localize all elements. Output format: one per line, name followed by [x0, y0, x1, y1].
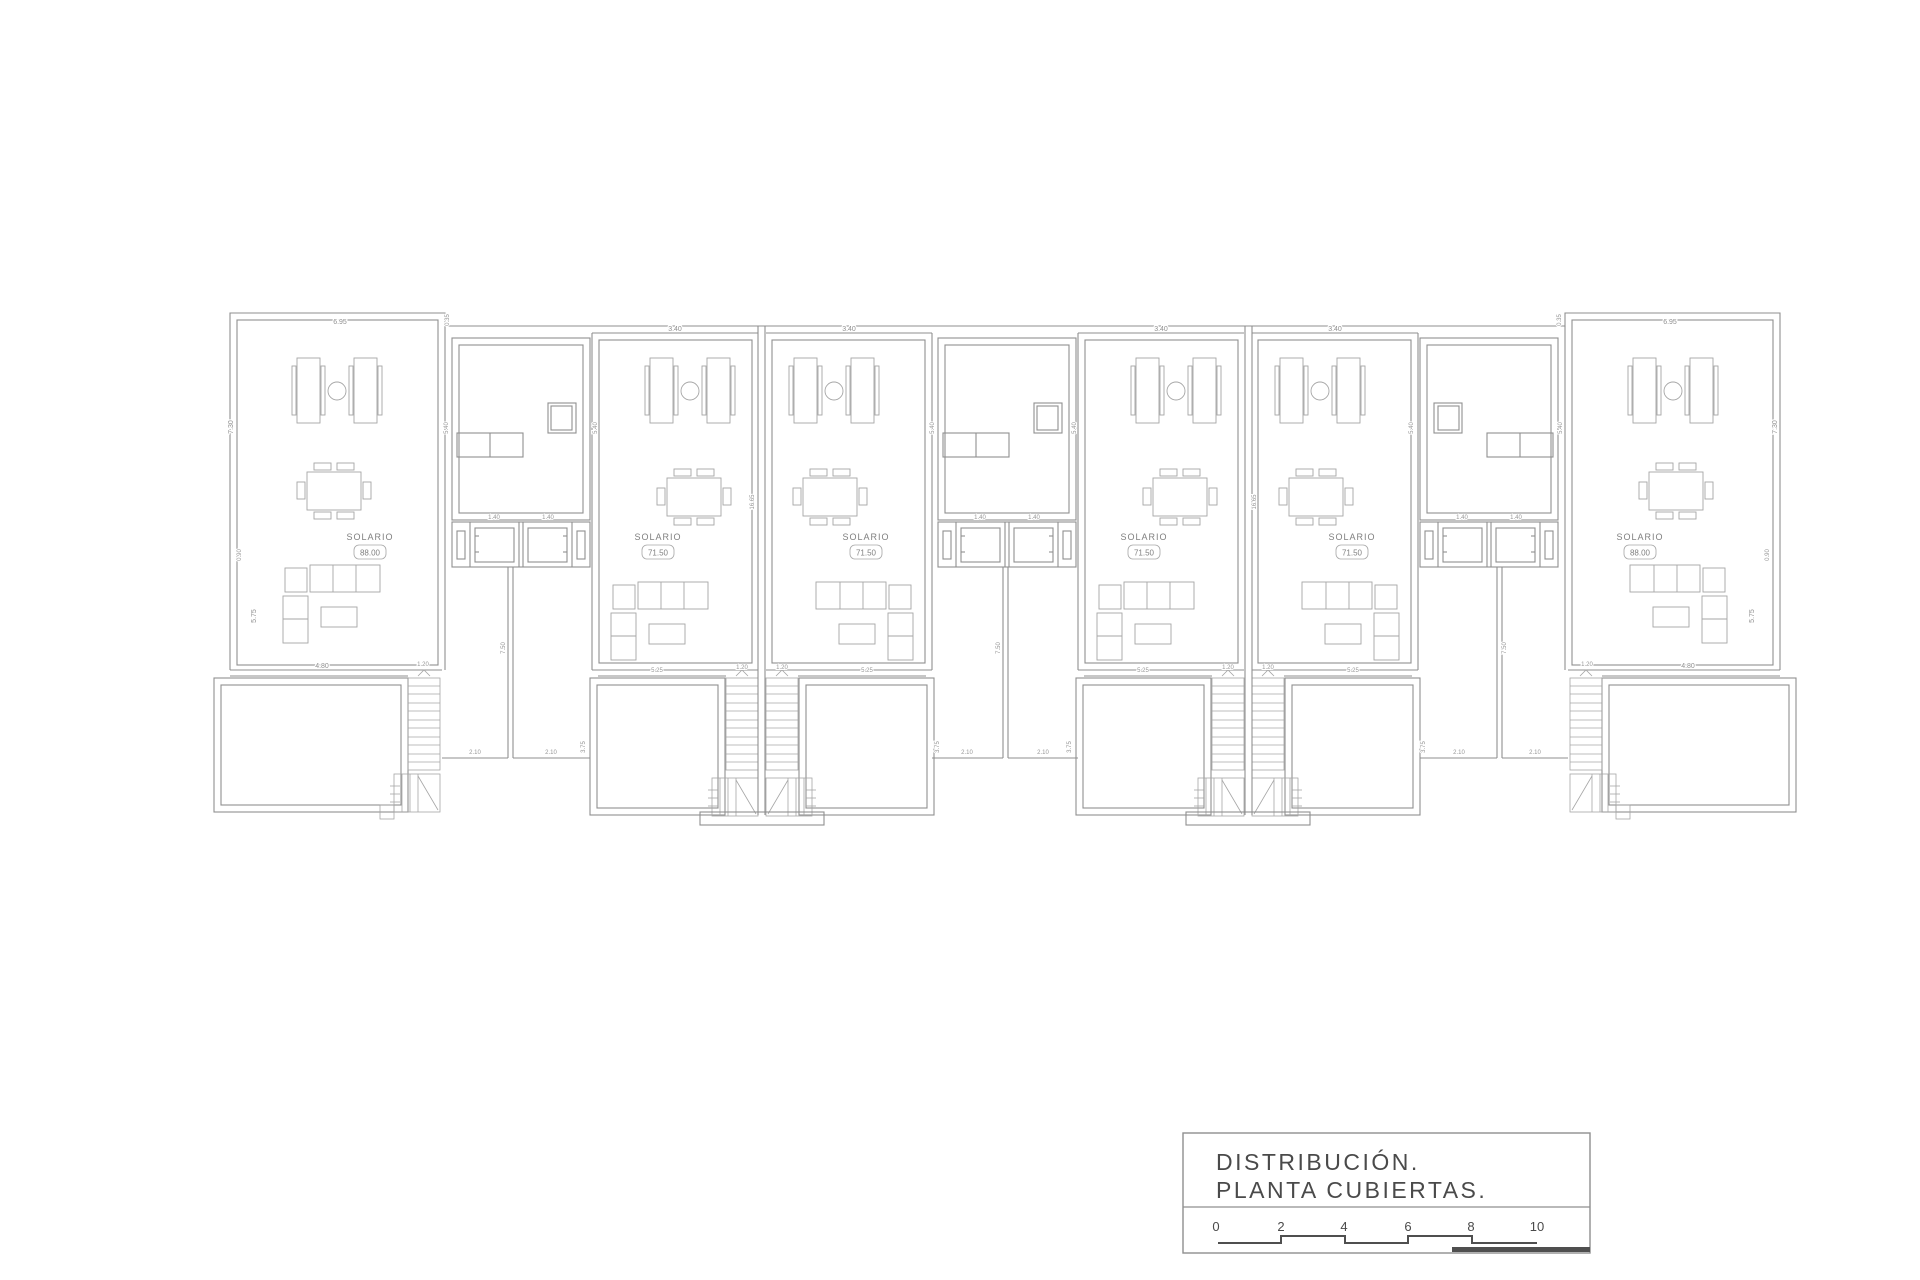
- dim-side-height-right: 7.30: [1772, 420, 1779, 434]
- dim-strip-height-1: 7.50: [501, 642, 507, 654]
- dim-end-width-right: 6.95: [1663, 319, 1677, 326]
- scale-tick-6: 6: [1404, 1219, 1411, 1234]
- floor-plan-page: SOLARIO 88.00 SOLARIO 71.50 SOLARIO 71.5…: [0, 0, 1920, 1280]
- area-value-4: 71.50: [1134, 549, 1155, 558]
- area-value-5: 71.50: [1342, 549, 1363, 558]
- scale-tick-10: 10: [1530, 1219, 1544, 1234]
- dim-room-side-3: 5.40: [930, 422, 936, 434]
- solario-label-1: SOLARIO: [346, 532, 393, 542]
- area-value-2: 71.50: [648, 549, 669, 558]
- dim-room-side-5: 5.40: [1409, 422, 1415, 434]
- dim-ac-5: 1.40: [1456, 515, 1468, 521]
- dim-step-right: 0.35: [1557, 314, 1563, 326]
- dim-lower-width-left: 4.80: [315, 663, 329, 670]
- dim-gap-5: 2.10: [1453, 750, 1465, 756]
- title-block-heavy-line: [1452, 1247, 1590, 1252]
- solario-label-6: SOLARIO: [1616, 532, 1663, 542]
- dim-ac-2: 1.40: [542, 515, 554, 521]
- title-block: DISTRIBUCIÓN. PLANTA CUBIERTAS. 0 2 4 6 …: [1183, 1133, 1590, 1253]
- dim-room-side-4: 5.40: [1072, 422, 1078, 434]
- dim-gap-3: 2.10: [961, 750, 973, 756]
- dim-mid-width-2: 3.40: [842, 326, 856, 333]
- dim-strip-height-2: 7.50: [996, 642, 1002, 654]
- dim-lower-room-width-1: 5.25: [651, 668, 663, 674]
- dim-lower-room-height-2: 3.75: [935, 741, 941, 753]
- dim-lower-room-height-1: 3.75: [581, 741, 587, 753]
- dim-side-step-right: 0.90: [1765, 549, 1771, 561]
- dim-gap-4: 2.10: [1037, 750, 1049, 756]
- dim-lower-room-width-2: 5.25: [861, 668, 873, 674]
- central-stair-room: [932, 338, 1078, 758]
- dim-gap-2: 2.10: [545, 750, 557, 756]
- dim-side-step-left: 0.90: [237, 549, 243, 561]
- area-value-6: 88.00: [1630, 549, 1651, 558]
- solario-label-3: SOLARIO: [842, 532, 889, 542]
- dim-terrace-side-right: 5.75: [1749, 609, 1756, 623]
- dim-gap-1: 2.10: [469, 750, 481, 756]
- dim-side-height-left: 7.30: [228, 420, 235, 434]
- dim-terrace-side-left: 5.75: [251, 609, 258, 623]
- dim-gap-6: 2.10: [1529, 750, 1541, 756]
- dim-room-side-2: 5.40: [593, 422, 599, 434]
- title-line-1: DISTRIBUCIÓN.: [1216, 1149, 1420, 1175]
- dim-mid-width-4: 3.40: [1328, 326, 1342, 333]
- dim-ac-3: 1.40: [974, 515, 986, 521]
- dim-mid-width-3: 3.40: [1154, 326, 1168, 333]
- dim-lower-room-height-3: 3.75: [1067, 741, 1073, 753]
- dim-ac-6: 1.40: [1510, 515, 1522, 521]
- roof-plan-drawing: SOLARIO 88.00 SOLARIO 71.50 SOLARIO 71.5…: [0, 0, 1920, 1280]
- dim-stair-width-3: 1.20: [776, 665, 788, 671]
- solario-label-5: SOLARIO: [1328, 532, 1375, 542]
- title-line-2: PLANTA CUBIERTAS.: [1216, 1177, 1487, 1203]
- dim-stair-width-6: 1.20: [1581, 662, 1593, 668]
- scale-tick-2: 2: [1277, 1219, 1284, 1234]
- dim-mid-width-1: 3.40: [668, 326, 682, 333]
- dim-stair-width-4: 1.20: [1222, 665, 1234, 671]
- dim-stair-width-1: 1.20: [417, 662, 429, 668]
- dim-stair-width-5: 1.20: [1262, 665, 1274, 671]
- dim-lower-width-right: 4.80: [1681, 663, 1695, 670]
- solario-label-4: SOLARIO: [1120, 532, 1167, 542]
- dim-step-left: 0.35: [445, 314, 451, 326]
- dim-party-height-right: 16.65: [1252, 494, 1258, 510]
- dim-ac-1: 1.40: [488, 515, 500, 521]
- dim-strip-height-3: 7.50: [1502, 642, 1508, 654]
- solario-label-2: SOLARIO: [634, 532, 681, 542]
- dim-room-side-1: 5.40: [444, 422, 450, 434]
- building-linework: [214, 313, 1796, 825]
- scale-tick-4: 4: [1340, 1219, 1347, 1234]
- area-value-3: 71.50: [856, 549, 877, 558]
- scale-tick-8: 8: [1467, 1219, 1474, 1234]
- scale-tick-0: 0: [1212, 1219, 1219, 1234]
- dim-stair-width-2: 1.20: [736, 665, 748, 671]
- dim-lower-room-width-4: 5.25: [1347, 668, 1359, 674]
- dim-party-height-left: 16.65: [750, 494, 756, 510]
- dim-ac-4: 1.40: [1028, 515, 1040, 521]
- dim-room-side-6: 5.40: [1558, 422, 1564, 434]
- area-value-1: 88.00: [360, 549, 381, 558]
- dim-lower-room-height-4: 3.75: [1421, 741, 1427, 753]
- dim-lower-room-width-3: 5.25: [1137, 668, 1149, 674]
- dim-end-width-left: 6.95: [333, 319, 347, 326]
